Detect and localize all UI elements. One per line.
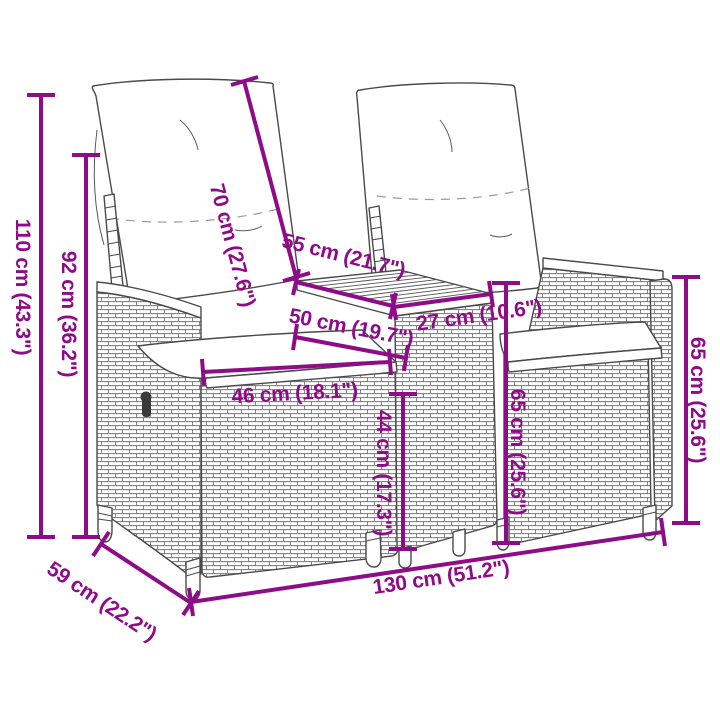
dim-armrest-height: 65 cm (25.6") <box>672 277 709 523</box>
left-backrest-cushion <box>92 79 298 303</box>
dim-overall-width-label: 130 cm (51.2") <box>371 556 511 599</box>
dim-back-height: 92 cm (36.2") <box>57 155 100 537</box>
diagram-svg: 110 cm (43.3") 92 cm (36.2") 70 cm (27.6… <box>0 0 720 720</box>
recline-slot <box>141 392 152 418</box>
dim-overall-height: 110 cm (43.3") <box>11 95 55 537</box>
dim-table-height-label: 65 cm (25.6") <box>506 389 529 515</box>
dim-seat-height-label: 44 cm (17.3") <box>372 410 395 536</box>
dim-overall-height-label: 110 cm (43.3") <box>11 219 34 356</box>
dimension-diagram: 110 cm (43.3") 92 cm (36.2") 70 cm (27.6… <box>0 0 720 720</box>
dim-back-height-label: 92 cm (36.2") <box>57 251 80 377</box>
right-armrest <box>650 279 672 521</box>
dim-armrest-height-label: 65 cm (25.6") <box>686 337 709 463</box>
